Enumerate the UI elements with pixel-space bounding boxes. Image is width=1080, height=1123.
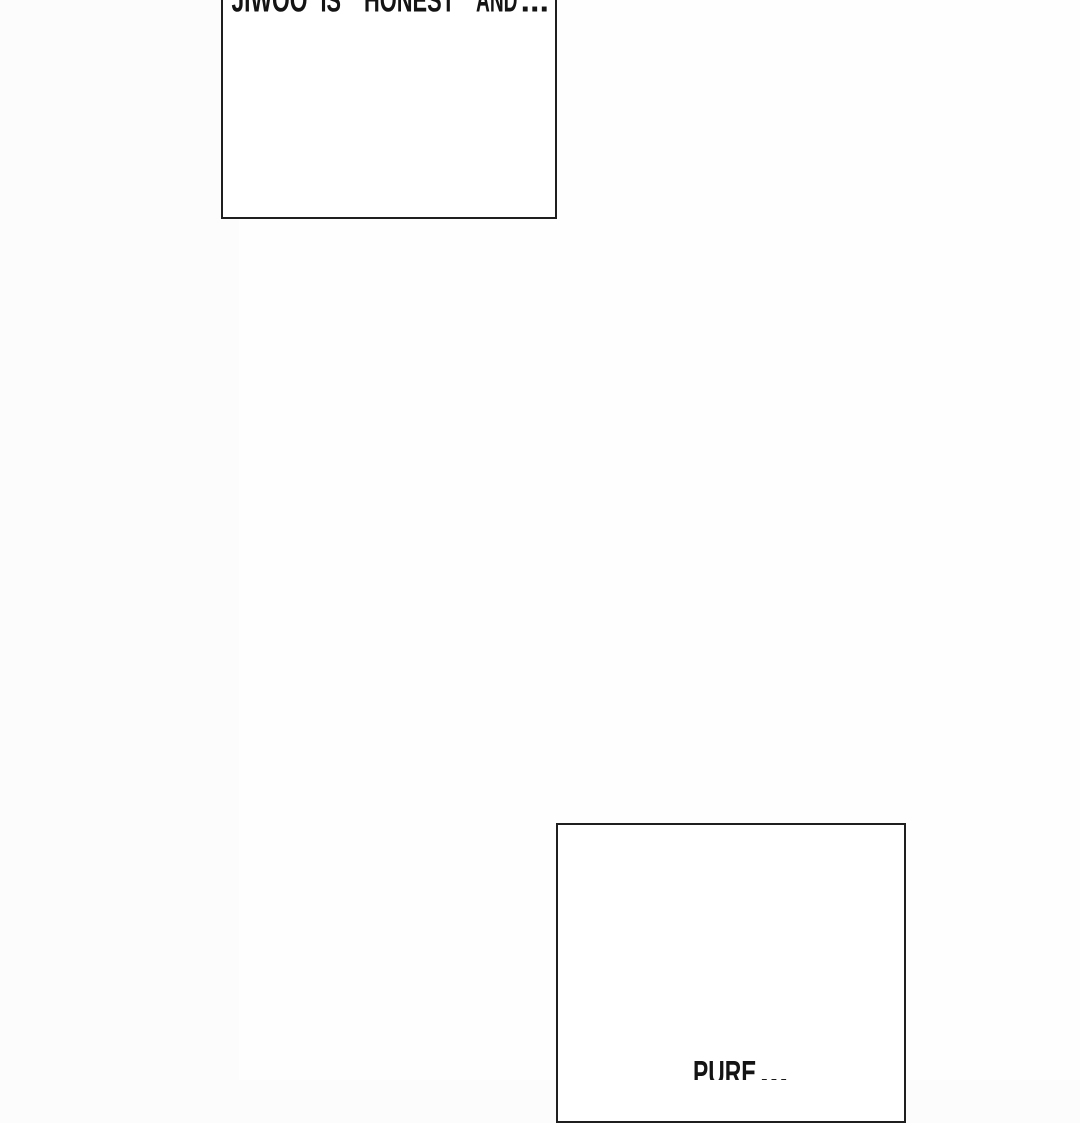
svg-text:IS: IS: [321, 0, 342, 19]
svg-text:HONEST: HONEST: [364, 0, 455, 19]
svg-text:JIWOO: JIWOO: [232, 0, 308, 19]
svg-text:AND: AND: [476, 0, 518, 19]
svg-text:...: ...: [760, 1054, 789, 1080]
svg-text:PURE: PURE: [693, 1054, 757, 1080]
svg-text:...: ...: [521, 0, 550, 19]
